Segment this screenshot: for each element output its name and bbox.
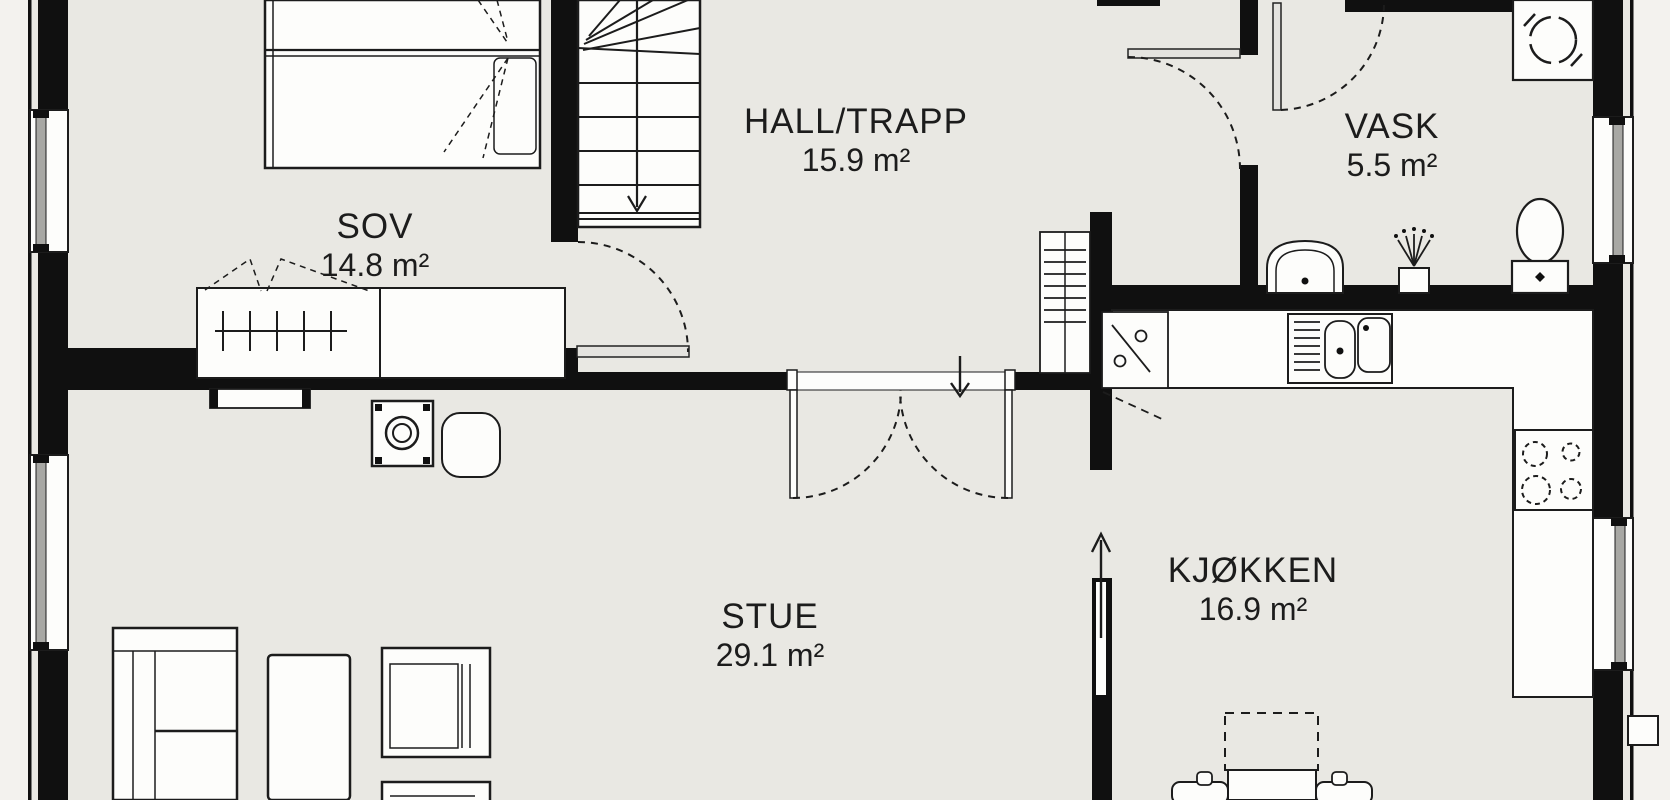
door-swing-arc [900,390,1008,498]
dining-table-leaf [1225,713,1318,770]
bathroom-sink [1267,241,1343,293]
room-area: 29.1 m² [716,636,824,674]
exterior-post [1628,716,1658,745]
cooktop [1515,430,1593,510]
direction-arrows [951,356,1110,638]
window-sov [30,110,68,252]
wall-right-top [1593,0,1623,117]
wall-vask-left [1240,165,1258,293]
door-leaf [1005,390,1012,498]
door-vask-top [1273,3,1384,110]
armchair [382,782,490,800]
wall-right-mid [1593,263,1623,518]
door-leaf [790,390,797,498]
wall-stair [551,0,578,242]
room-name: VASK [1345,108,1440,146]
sofa [113,628,237,800]
sov-furniture [197,0,565,378]
radiator [1040,232,1090,373]
wall-hall-bottom-left [545,372,797,390]
faucet-dot [1302,278,1309,285]
wall [38,0,68,112]
room-name: STUE [716,598,824,636]
door-swing-arc [1281,5,1384,110]
double-bed [265,0,540,168]
room-area: 14.8 m² [321,246,429,284]
room-name: SOV [321,208,429,246]
door-swing-arc [1128,57,1240,169]
side-table [442,413,500,477]
floor-plan: SOV 14.8 m² HALL/TRAPP 15.9 m² VASK 5.5 … [0,0,1670,800]
room-label-kjokken: KJØKKEN 16.9 m² [1168,552,1338,628]
room-area: 15.9 m² [744,141,968,179]
room-name: KJØKKEN [1168,552,1338,590]
window-kitchen [1593,518,1633,670]
kitchen-sink [1288,314,1392,383]
coffee-table [268,655,350,800]
stue-furniture [113,389,500,800]
room-label-vask: VASK 5.5 m² [1345,108,1440,184]
wall-right-bottom [1593,670,1623,800]
armchair [382,648,490,757]
room-label-hall: HALL/TRAPP 15.9 m² [744,103,968,179]
room-area: 5.5 m² [1345,146,1440,184]
door-vask [1128,49,1240,169]
wall-top-edge [1097,0,1160,6]
wood-stove [372,401,433,466]
wall-top-edge [1345,0,1513,12]
room-label-sov: SOV 14.8 m² [321,208,429,284]
double-door-stue [787,370,1015,498]
washing-machine [1513,0,1593,80]
sideboard [210,389,310,408]
toilet [1512,199,1568,293]
dining-set [1172,713,1372,800]
door-sov [577,242,689,357]
floor-drain [1394,227,1434,293]
window-vask [1593,117,1633,263]
door-swing-arc [793,390,901,498]
window-stue [30,455,68,650]
staircase [578,0,700,227]
room-name: HALL/TRAPP [744,103,968,141]
room-area: 16.9 m² [1168,590,1338,628]
room-label-stue: STUE 29.1 m² [716,598,824,674]
dining-table [1228,770,1316,800]
wall-vask-stub [1240,0,1258,55]
wall [38,648,68,800]
door-swing-arc [578,242,688,352]
